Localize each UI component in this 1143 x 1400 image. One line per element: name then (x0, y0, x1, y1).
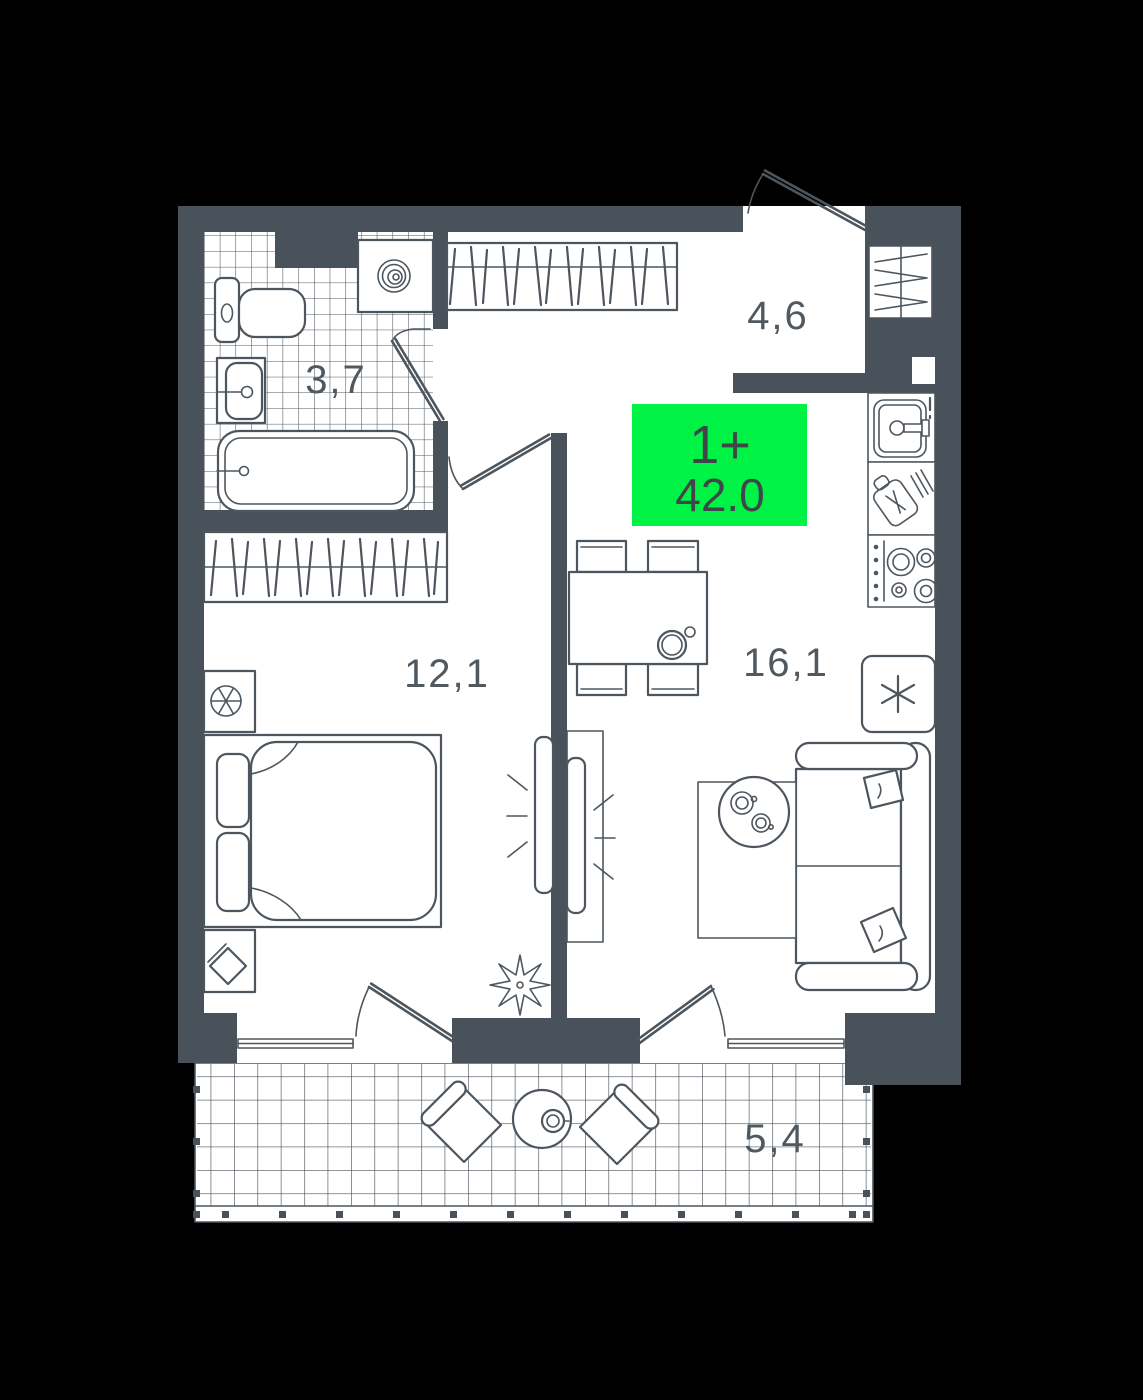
sofa-pillow (864, 770, 903, 808)
badge-unit-type: 1+ (689, 415, 751, 475)
bed-pillow (217, 754, 249, 827)
kitchen-faucet-icon (890, 421, 904, 435)
wall-hall-kitchen (733, 373, 935, 393)
sink-faucet-icon (242, 387, 253, 398)
wall-central-partition (551, 433, 567, 1036)
bedroom-wardrobe (204, 532, 447, 602)
dining-table (569, 572, 707, 664)
wall-bathroom-east-lower (433, 421, 448, 532)
nightstand-top (204, 671, 255, 732)
bathtub (217, 431, 414, 511)
badge-total-area: 42.0 (675, 469, 765, 521)
wall-bathroom-south (178, 510, 447, 532)
wall-bottom-mid-block (452, 1018, 640, 1063)
floorplan-canvas: 3,7 4,6 12,1 16,1 5,4 1+ 42.0 (0, 0, 1143, 1400)
stove (868, 535, 938, 607)
bedroom-window (238, 1039, 353, 1048)
room-label-bedroom: 12,1 (404, 652, 490, 696)
living-window (728, 1039, 844, 1048)
wall-bottom-right-block (845, 1013, 961, 1085)
dining-chair (648, 541, 698, 572)
dining-chair (648, 664, 698, 695)
bed (204, 735, 441, 927)
room-label-hallway: 4,6 (747, 294, 809, 338)
coffee-table (698, 777, 796, 938)
entry-wall-niche (912, 357, 935, 384)
washer-drum-spiral-icon (378, 260, 410, 292)
nightstand-bottom (204, 930, 255, 992)
bathroom-sink (217, 358, 265, 423)
wall-left (178, 206, 204, 1063)
wall-bathroom-shaft (275, 232, 358, 268)
hallway-wardrobe (447, 243, 677, 310)
washing-machine (358, 240, 433, 312)
room-label-balcony: 5,4 (744, 1117, 806, 1161)
wall-bathroom-east-upper (433, 232, 448, 329)
balcony-table (513, 1090, 571, 1148)
dining-chair (577, 541, 626, 572)
wall-top (178, 206, 743, 232)
sofa (796, 743, 930, 990)
wall-right (935, 206, 961, 1085)
unit-info-badge: 1+ 42.0 (632, 404, 807, 526)
dining-chair (577, 664, 626, 695)
tub-faucet-icon (240, 467, 249, 476)
fridge (862, 656, 935, 732)
kitchen-sink-unit (868, 393, 935, 462)
bed-pillow (217, 833, 249, 911)
entry-closet (869, 246, 932, 318)
floorplan-svg: 3,7 4,6 12,1 16,1 5,4 1+ 42.0 (0, 0, 1143, 1400)
balcony-cup-icon (542, 1110, 564, 1132)
kitchen (862, 393, 938, 732)
kitchen-worktop-cutting-board (865, 462, 935, 535)
room-label-bathroom: 3,7 (305, 358, 367, 402)
wall-bottom-left-block (178, 1013, 237, 1063)
room-label-living-kitchen: 16,1 (743, 641, 829, 685)
